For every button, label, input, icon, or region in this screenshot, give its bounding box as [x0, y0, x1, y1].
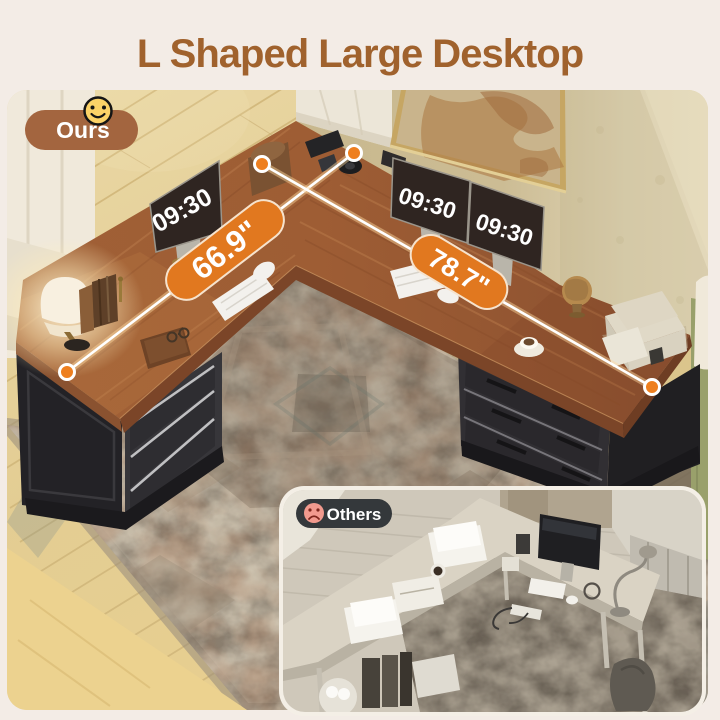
svg-text:Others: Others [327, 505, 382, 524]
svg-text:L Shaped Large Desktop: L Shaped Large Desktop [137, 32, 583, 76]
